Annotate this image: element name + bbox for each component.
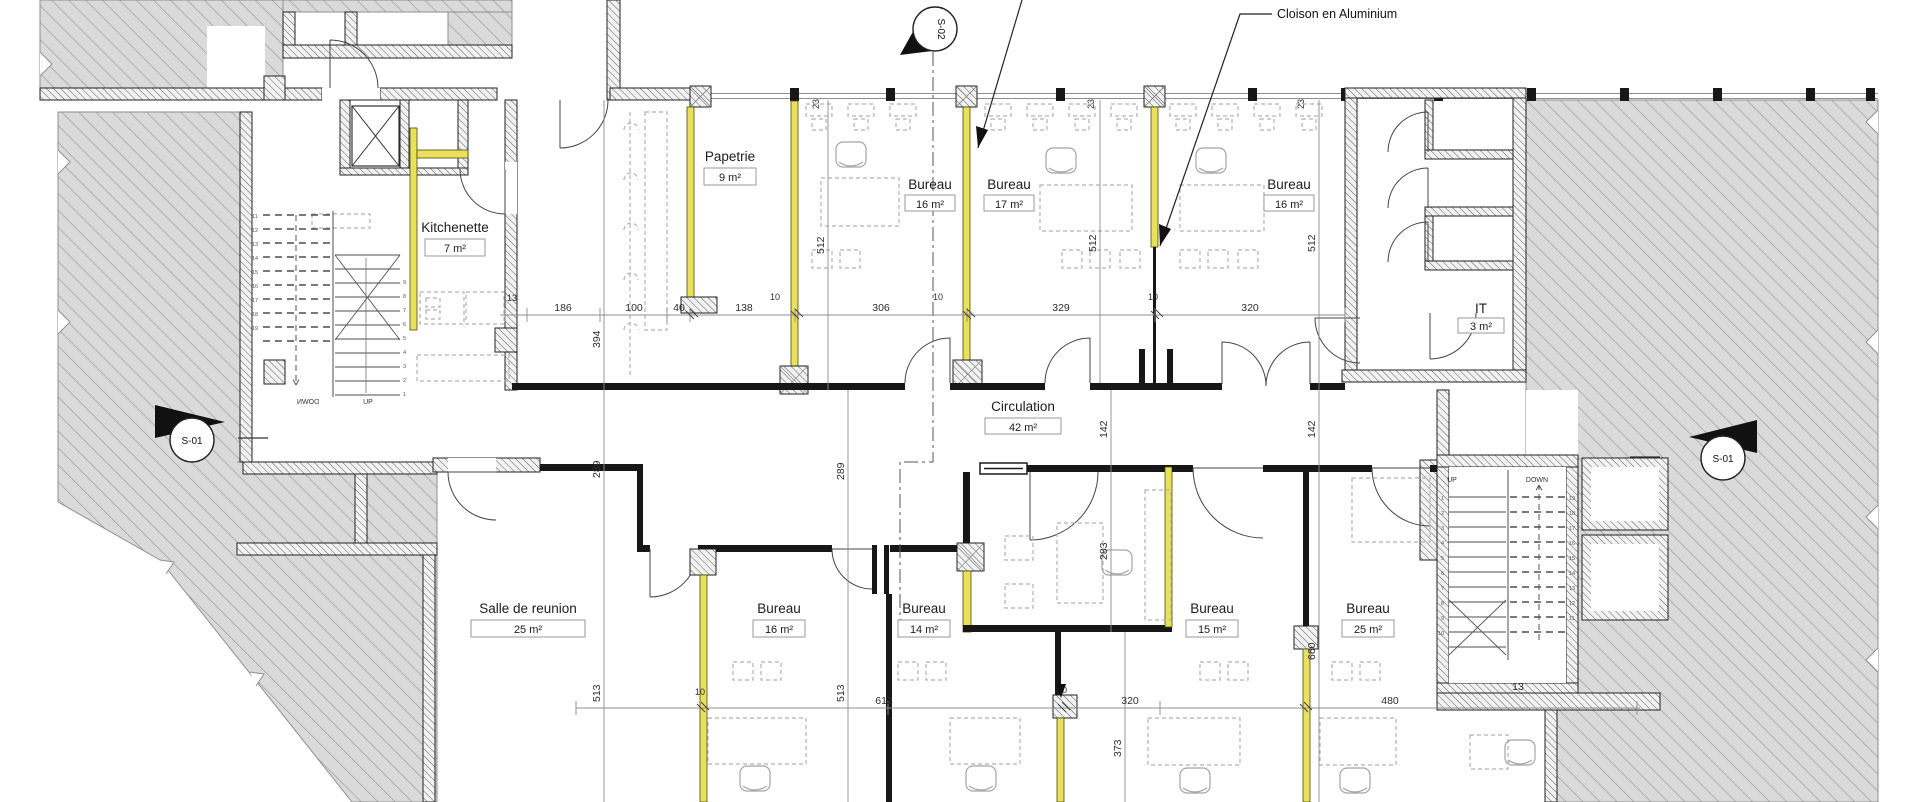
svg-text:8: 8: [1441, 601, 1444, 607]
bottom-offices: [433, 390, 1449, 802]
svg-text:9 m²: 9 m²: [719, 172, 741, 184]
dim-513: 513: [591, 684, 603, 702]
svg-text:3 m²: 3 m²: [1470, 321, 1492, 333]
svg-text:1: 1: [403, 392, 406, 398]
dim-23: 23: [1296, 99, 1306, 109]
salle-door: [448, 472, 496, 520]
cloison-label: Cloison en Aluminium: [1277, 7, 1397, 21]
room-label-bureau-t1: Bureau: [908, 177, 952, 192]
partition-aluminium: [1165, 467, 1172, 627]
dim-289: 289: [835, 462, 847, 480]
svg-text:7: 7: [403, 308, 406, 314]
svg-text:10: 10: [1438, 631, 1444, 637]
dim-142: 142: [1098, 420, 1110, 438]
leader-arrowhead: [976, 126, 988, 148]
svg-text:16: 16: [1569, 541, 1575, 547]
column: [495, 328, 517, 352]
partition-aluminium: [963, 107, 970, 362]
stair-up-label: UP: [363, 399, 373, 406]
dim-512: 512: [815, 236, 827, 254]
dim-138: 138: [735, 302, 753, 314]
dim-23: 23: [811, 99, 821, 109]
room-label-kitchenette: Kitchenette: [421, 220, 489, 235]
dim-10: 10: [933, 292, 943, 302]
svg-text:11: 11: [252, 214, 258, 220]
svg-text:16 m²: 16 m²: [916, 199, 944, 211]
room-label-it: IT: [1475, 301, 1487, 316]
dim-10: 10: [770, 292, 780, 302]
svg-text:18: 18: [1569, 511, 1575, 517]
svg-text:3: 3: [1441, 526, 1444, 532]
svg-text:7: 7: [1441, 586, 1444, 592]
partition-aluminium: [687, 107, 694, 303]
svg-text:5: 5: [1441, 556, 1444, 562]
partition-aluminium: [1303, 649, 1310, 802]
svg-text:17: 17: [252, 298, 258, 304]
svg-text:16: 16: [252, 284, 258, 290]
dim-13-top: 13: [507, 293, 517, 303]
office-door: [832, 549, 872, 589]
floor-plan-screenshot: 13 186 100 40 138 306 329 320 10 10 10 1…: [0, 0, 1920, 802]
meeting-room-door: [1030, 472, 1098, 540]
office-door: [1193, 468, 1263, 538]
svg-text:9: 9: [1441, 616, 1444, 622]
stair-up-label: UP: [1447, 477, 1457, 484]
svg-text:14: 14: [252, 256, 258, 262]
dim-394: 394: [591, 330, 603, 348]
svg-text:1: 1: [1441, 496, 1444, 502]
partition-aluminium: [791, 101, 798, 368]
dim-13b: 13: [1512, 681, 1524, 693]
svg-text:S-01: S-01: [181, 436, 203, 447]
dim-283: 283: [1098, 542, 1110, 560]
room-label-bureau-b1: Bureau: [757, 601, 801, 616]
corridor-double-door: [1222, 342, 1310, 386]
dim-10: 10: [1148, 292, 1158, 302]
svg-text:5: 5: [403, 336, 406, 342]
dim-512: 512: [1087, 234, 1099, 252]
partition-aluminium: [1151, 107, 1158, 247]
svg-text:13: 13: [252, 242, 258, 248]
kitchenette-door: [460, 169, 505, 214]
svg-text:S-02: S-02: [935, 18, 946, 40]
left-core: [263, 76, 667, 397]
svg-text:14: 14: [1569, 571, 1575, 577]
svg-text:12: 12: [1569, 601, 1575, 607]
svg-text:42 m²: 42 m²: [1009, 422, 1037, 434]
svg-text:25 m²: 25 m²: [514, 624, 542, 636]
stair-down-label: DOWN: [297, 399, 319, 406]
svg-text:15: 15: [1569, 556, 1575, 562]
dim-329: 329: [1052, 302, 1070, 314]
column: [690, 549, 716, 575]
svg-text:4: 4: [1441, 541, 1444, 547]
svg-text:17: 17: [1569, 526, 1575, 532]
dim-10: 10: [695, 687, 705, 697]
column: [264, 76, 285, 100]
svg-text:25 m²: 25 m²: [1354, 624, 1382, 636]
sanitary-block: [1315, 88, 1526, 382]
svg-text:15 m²: 15 m²: [1198, 624, 1226, 636]
entry-alcove: [207, 26, 265, 88]
dim-373: 373: [1112, 739, 1124, 757]
section-marker-s02: S-02: [900, 7, 957, 55]
room-bottom-right: [1437, 710, 1545, 802]
dim-480: 480: [1381, 695, 1399, 707]
room-label-bureau-b2: Bureau: [902, 601, 946, 616]
cloison-annotation: Cloison en Aluminium: [976, 0, 1397, 246]
stair-texts: DOWN UP DOWN UP 1 2 3 4 5 6 7 8 9 11 12 …: [252, 214, 1575, 637]
office-door: [905, 338, 950, 383]
stall-door: [1388, 168, 1428, 208]
svg-text:19: 19: [252, 326, 258, 332]
svg-text:S-01: S-01: [1712, 454, 1734, 465]
dim-100: 100: [625, 302, 643, 314]
office-door: [1045, 338, 1090, 383]
partition-aluminium: [1057, 718, 1064, 802]
svg-text:3: 3: [403, 364, 406, 370]
partition-aluminium: [963, 571, 971, 632]
column: [264, 360, 285, 384]
dim-320b: 320: [1121, 695, 1139, 707]
dim-40: 40: [673, 302, 685, 314]
dim-320: 320: [1241, 302, 1259, 314]
room-label-bureau-t3: Bureau: [1267, 177, 1311, 192]
papetrie-shelving: [645, 112, 667, 330]
dim-306: 306: [872, 302, 890, 314]
svg-text:15: 15: [252, 270, 258, 276]
column: [1053, 695, 1077, 718]
kitchenette-wall-yellow: [410, 128, 417, 330]
room-label-bureau-t2: Bureau: [987, 177, 1031, 192]
svg-text:2: 2: [403, 378, 406, 384]
svg-text:19: 19: [1569, 496, 1575, 502]
room-label-bureau-b4: Bureau: [1346, 601, 1390, 616]
svg-text:14 m²: 14 m²: [910, 624, 938, 636]
svg-text:6: 6: [1441, 571, 1444, 577]
svg-text:9: 9: [403, 280, 406, 286]
svg-text:11: 11: [1569, 616, 1575, 622]
leader-arrowhead: [1159, 224, 1171, 246]
svg-text:16 m²: 16 m²: [765, 624, 793, 636]
svg-text:13: 13: [1569, 586, 1575, 592]
facade-columns: [790, 88, 1875, 101]
anteroom-door: [560, 100, 608, 148]
stall-door: [1388, 112, 1428, 152]
room-label-bureau-b3: Bureau: [1190, 601, 1234, 616]
dim-513: 513: [835, 684, 847, 702]
svg-text:16 m²: 16 m²: [1275, 199, 1303, 211]
svg-text:6: 6: [403, 322, 406, 328]
stall-door: [1388, 222, 1428, 262]
floor-plan-svg: 13 186 100 40 138 306 329 320 10 10 10 1…: [0, 0, 1920, 802]
room-label-circulation: Circulation: [991, 399, 1055, 414]
dim-512: 512: [1306, 234, 1318, 252]
dim-660: 660: [1306, 642, 1318, 660]
dim-289: 289: [591, 460, 603, 478]
svg-text:7 m²: 7 m²: [444, 243, 466, 255]
dim-142: 142: [1306, 420, 1318, 438]
svg-text:18: 18: [252, 312, 258, 318]
room-label-salle: Salle de reunion: [479, 601, 577, 616]
top-offices: [512, 101, 1345, 394]
svg-text:4: 4: [403, 350, 406, 356]
svg-text:2: 2: [1441, 511, 1444, 517]
svg-text:8: 8: [403, 294, 406, 300]
room-label-papetrie: Papetrie: [705, 149, 755, 164]
svg-text:17 m²: 17 m²: [995, 199, 1023, 211]
dim-23: 23: [1086, 99, 1096, 109]
dim-186: 186: [554, 302, 572, 314]
stair-down-label: DOWN: [1526, 477, 1548, 484]
svg-text:12: 12: [252, 228, 258, 234]
dim-612: 612: [875, 695, 893, 707]
salle-left-wall: [423, 555, 435, 802]
